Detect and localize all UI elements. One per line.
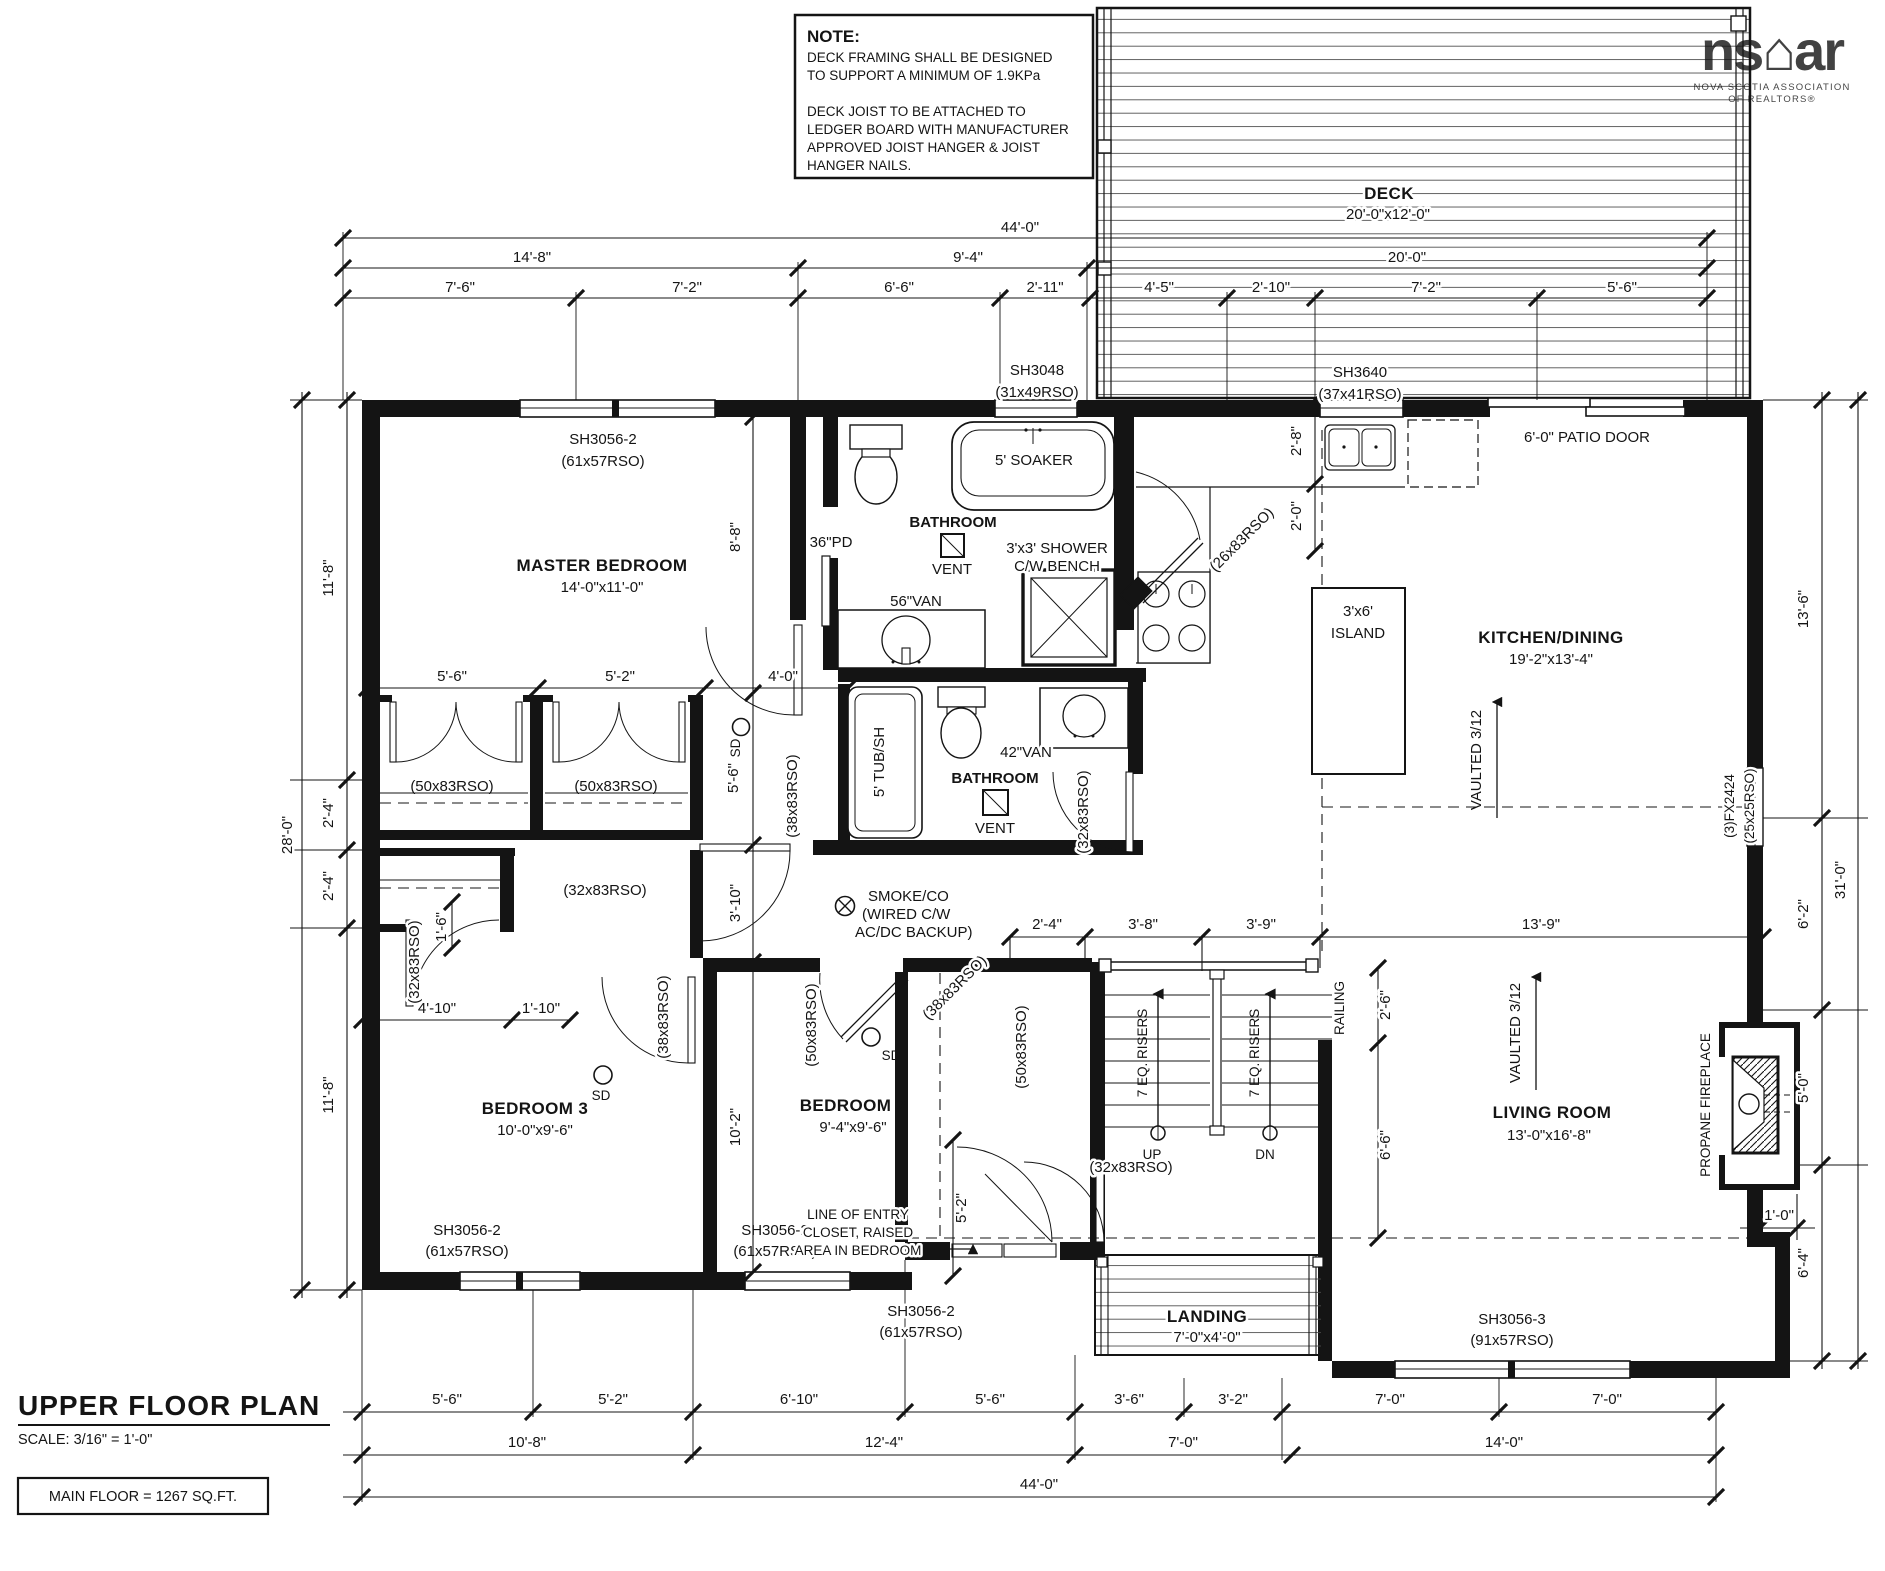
deck-title: DECK xyxy=(1364,184,1414,203)
dim: 7'-6" xyxy=(445,279,475,296)
note-line: DECK JOIST TO BE ATTACHED TO xyxy=(807,104,1026,119)
fireplace-label: PROPANE FIREPLACE xyxy=(1698,1033,1713,1177)
vent-symbol xyxy=(983,790,1008,815)
door-label: (32x83RSO) xyxy=(406,920,423,1003)
patio-door xyxy=(1488,398,1685,416)
window-master xyxy=(520,400,715,417)
dim: 4'-10" xyxy=(418,1000,456,1017)
vanity-56 xyxy=(838,610,985,668)
landing-size: 7'-0"x4'-0" xyxy=(1173,1329,1240,1346)
vanity-42 xyxy=(1040,688,1128,748)
fireplace: PROPANE FIREPLACE xyxy=(1698,1025,1797,1187)
dim: 44'-0" xyxy=(1001,219,1039,236)
room-title: LIVING ROOM xyxy=(1493,1103,1612,1122)
dim: 7'-0" xyxy=(1375,1391,1405,1408)
dim: 11'-8" xyxy=(320,559,337,596)
landing-title: LANDING xyxy=(1167,1307,1247,1326)
room-size: 13'-0"x16'-8" xyxy=(1507,1127,1591,1144)
nsar-logo: ns⌂ar NOVA SCOTIA ASSOCIATION OF REALTOR… xyxy=(1693,19,1850,105)
note-line: LEDGER BOARD WITH MANUFACTURER xyxy=(807,122,1069,137)
room-size: 19'-2"x13'-4" xyxy=(1509,651,1593,668)
dim: 5'-6" xyxy=(437,668,467,685)
toilet xyxy=(938,687,985,758)
fixture-label: 5' TUB/SH xyxy=(871,727,888,797)
smoke-label: AC/DC BACKUP) xyxy=(855,924,973,941)
window-label: SH3640 xyxy=(1333,364,1387,381)
dim: 20'-0" xyxy=(1388,249,1426,266)
room-title: BATHROOM xyxy=(951,770,1038,787)
kitchen-sink xyxy=(1325,425,1395,470)
dim: 3'-6" xyxy=(1114,1391,1144,1408)
risers-label: 7 EQ. RISERS xyxy=(1135,1009,1150,1098)
smoke-co-symbol xyxy=(836,897,855,916)
door-label: (32x83RSO) xyxy=(1089,1159,1172,1176)
window-bath xyxy=(995,400,1077,417)
dim: 5'-6" xyxy=(975,1391,1005,1408)
dim: 3'-9" xyxy=(1246,916,1276,933)
dim: 6'-6" xyxy=(1377,1130,1394,1160)
sd-label: SD xyxy=(882,1048,901,1063)
dim: 7'-2" xyxy=(672,279,702,296)
room-size: 14'-0"x11'-0" xyxy=(561,579,644,596)
dim: 8'-8" xyxy=(727,522,744,552)
fixture-label: 42"VAN xyxy=(1000,744,1052,761)
fixture-label: 3'x3' SHOWER xyxy=(1006,540,1108,557)
dim: 31'-0" xyxy=(1832,861,1849,899)
window-label: (61x57RSO) xyxy=(561,453,644,470)
door-label: (50x83RSO) xyxy=(1013,1005,1030,1088)
window-label: SH3056-2 xyxy=(569,431,637,448)
fixture-label: 3'x6' xyxy=(1343,603,1373,620)
dim: 2'-8" xyxy=(1288,426,1305,456)
room-size: 9'-4"x9'-6" xyxy=(819,1119,886,1136)
dim: 4'-5" xyxy=(1144,279,1174,296)
railing-label: RAILING xyxy=(1332,981,1347,1035)
title-block: UPPER FLOOR PLAN SCALE: 3/16" = 1'-0" MA… xyxy=(18,1390,330,1514)
vent-label: VENT xyxy=(975,820,1015,837)
door-label: (50x83RSO) xyxy=(803,983,820,1066)
entry-note: AREA IN BEDROOM xyxy=(795,1243,922,1258)
dim: 2'-4" xyxy=(1032,916,1062,933)
window-label: (3)FX2424 xyxy=(1722,774,1737,838)
dim: 2'-4" xyxy=(320,798,337,828)
door-label: (50x83RSO) xyxy=(574,778,657,795)
dim: 7'-0" xyxy=(1592,1391,1622,1408)
dim: 5'-2" xyxy=(605,668,635,685)
sheet-area: MAIN FLOOR = 1267 SQ.FT. xyxy=(49,1489,237,1505)
dim: 9'-4" xyxy=(953,249,983,266)
room-title: BEDROOM 2 xyxy=(800,1096,907,1115)
vent-symbol xyxy=(941,534,964,557)
vaulted-label: VAULTED 3/12 xyxy=(1507,983,1524,1083)
shower xyxy=(1023,570,1115,665)
dim: 13'-9" xyxy=(1522,916,1560,933)
room-size: 10'-0"x9'-6" xyxy=(497,1122,573,1139)
nsar-logo-mark: ns⌂ar xyxy=(1701,19,1844,82)
dim: 28'-0" xyxy=(279,816,296,854)
dim: 2'-10" xyxy=(1252,279,1290,296)
window-bed3 xyxy=(460,1272,580,1290)
dim: 6'-6" xyxy=(884,279,914,296)
window-label: (91x57RSO) xyxy=(1470,1332,1553,1349)
door-label: (32x83RSO) xyxy=(563,882,646,899)
dim: 44'-0" xyxy=(1020,1476,1058,1493)
stairs: 7 EQ. RISERS 7 EQ. RISERS UP DN xyxy=(1099,959,1332,1162)
window-label: SH3056-2 xyxy=(741,1222,809,1239)
risers-label: 7 EQ. RISERS xyxy=(1247,1009,1262,1098)
vent-label: VENT xyxy=(932,561,972,578)
sd-label: SD xyxy=(728,738,743,757)
dim: 7'-0" xyxy=(1168,1434,1198,1451)
sheet-scale: SCALE: 3/16" = 1'-0" xyxy=(18,1432,152,1448)
window-label: (31x49RSO) xyxy=(995,384,1078,401)
dim: 5'-2" xyxy=(953,1193,970,1223)
dim: 5'-6" xyxy=(432,1391,462,1408)
dim: 5'-6" xyxy=(725,763,742,793)
note-line: TO SUPPORT A MINIMUM OF 1.9KPa xyxy=(807,68,1041,83)
dim: 12'-4" xyxy=(865,1434,903,1451)
sheet-title: UPPER FLOOR PLAN xyxy=(18,1390,320,1421)
dim: 1'-6" xyxy=(433,912,450,942)
room-title: KITCHEN/DINING xyxy=(1478,628,1623,647)
window-label: (25x25RSO) xyxy=(1742,768,1757,843)
dim: 14'-8" xyxy=(513,249,551,266)
door-label: (38x83RSO) xyxy=(784,754,801,837)
dim: 1'-0" xyxy=(1764,1207,1794,1224)
window-label: (61x57RSO) xyxy=(425,1243,508,1260)
door-label: (32x83RSO) xyxy=(1075,770,1092,853)
nsar-logo-sub1: NOVA SCOTIA ASSOCIATION xyxy=(1693,82,1850,93)
dim: 2'-6" xyxy=(1377,990,1394,1020)
note-title: NOTE: xyxy=(807,27,860,46)
vaulted-label: VAULTED 3/12 xyxy=(1468,710,1485,810)
dim: 3'-8" xyxy=(1128,916,1158,933)
note-box: NOTE: DECK FRAMING SHALL BE DESIGNED TO … xyxy=(795,15,1093,178)
pocket-door xyxy=(822,556,830,626)
window-label: SH3056-3 xyxy=(1478,1311,1546,1328)
dim: 3'-2" xyxy=(1218,1391,1248,1408)
dim: 13'-6" xyxy=(1795,590,1812,628)
window-label: SH3048 xyxy=(1010,362,1064,379)
floor-plan-sheet: DECK 20'-0"x12'-0" ns⌂ar NOVA SCOTIA ASS… xyxy=(0,0,1885,1571)
dim: 14'-0" xyxy=(1485,1434,1523,1451)
window-label: (37x41RSO) xyxy=(1318,386,1401,403)
stove xyxy=(1138,572,1210,663)
dim: 1'-10" xyxy=(522,1000,560,1017)
dim: 6'-2" xyxy=(1795,899,1812,929)
dim: 6'-10" xyxy=(780,1391,818,1408)
room-title: BEDROOM 3 xyxy=(482,1099,589,1118)
dim: 11'-8" xyxy=(320,1076,337,1113)
door-label: (38x83RSO) xyxy=(655,975,672,1058)
window-living xyxy=(1395,1361,1630,1378)
door-label: 36"PD xyxy=(810,534,853,551)
windows xyxy=(460,398,1763,1378)
fixture-label: 56"VAN xyxy=(890,593,942,610)
dim: 10'-8" xyxy=(508,1434,546,1451)
fixture-label: 5' SOAKER xyxy=(995,452,1073,469)
dim: 5'-6" xyxy=(1607,279,1637,296)
deck: DECK 20'-0"x12'-0" xyxy=(1097,8,1750,398)
dim: 5'-0" xyxy=(1795,1073,1812,1103)
fridge xyxy=(1408,420,1478,487)
window-label: (61x57RSO) xyxy=(879,1324,962,1341)
door-label: (26x83RSO) xyxy=(1206,504,1277,575)
note-line: APPROVED JOIST HANGER & JOIST xyxy=(807,140,1040,155)
entry-note: LINE OF ENTRY xyxy=(807,1207,909,1222)
fixture-label: C/W BENCH xyxy=(1014,558,1100,575)
window-label: SH3056-2 xyxy=(887,1303,955,1320)
dim: 6'-4" xyxy=(1795,1248,1812,1278)
room-title: MASTER BEDROOM xyxy=(517,556,688,575)
window-label: SH3056-2 xyxy=(433,1222,501,1239)
dim: 2'-0" xyxy=(1288,501,1305,531)
dim: 5'-2" xyxy=(598,1391,628,1408)
toilet xyxy=(850,425,902,504)
note-line: HANGER NAILS. xyxy=(807,158,911,173)
smoke-label: SMOKE/CO xyxy=(868,888,949,905)
window-bed2 xyxy=(745,1272,850,1290)
landing: LANDING 7'-0"x4'-0" xyxy=(1095,1255,1323,1355)
room-title: BATHROOM xyxy=(909,514,996,531)
sd-label: SD xyxy=(592,1088,611,1103)
dim: 2'-11" xyxy=(1026,279,1063,296)
dim: 4'-0" xyxy=(768,668,798,685)
smoke-label: (WIRED C/W xyxy=(862,906,951,923)
dim: 7'-2" xyxy=(1411,279,1441,296)
dim: 2'-4" xyxy=(320,871,337,901)
dn-label: DN xyxy=(1255,1147,1275,1162)
nsar-logo-sub2: OF REALTORS® xyxy=(1728,94,1816,105)
note-line: DECK FRAMING SHALL BE DESIGNED xyxy=(807,50,1053,65)
fixture-label: ISLAND xyxy=(1331,625,1385,642)
dim: 10'-2" xyxy=(727,1108,744,1146)
window-label: 6'-0" PATIO DOOR xyxy=(1524,429,1650,446)
entry-note: CLOSET, RAISED xyxy=(803,1225,914,1240)
door-label: (50x83RSO) xyxy=(410,778,493,795)
deck-size: 20'-0"x12'-0" xyxy=(1346,206,1430,223)
dim: 3'-10" xyxy=(727,884,744,922)
